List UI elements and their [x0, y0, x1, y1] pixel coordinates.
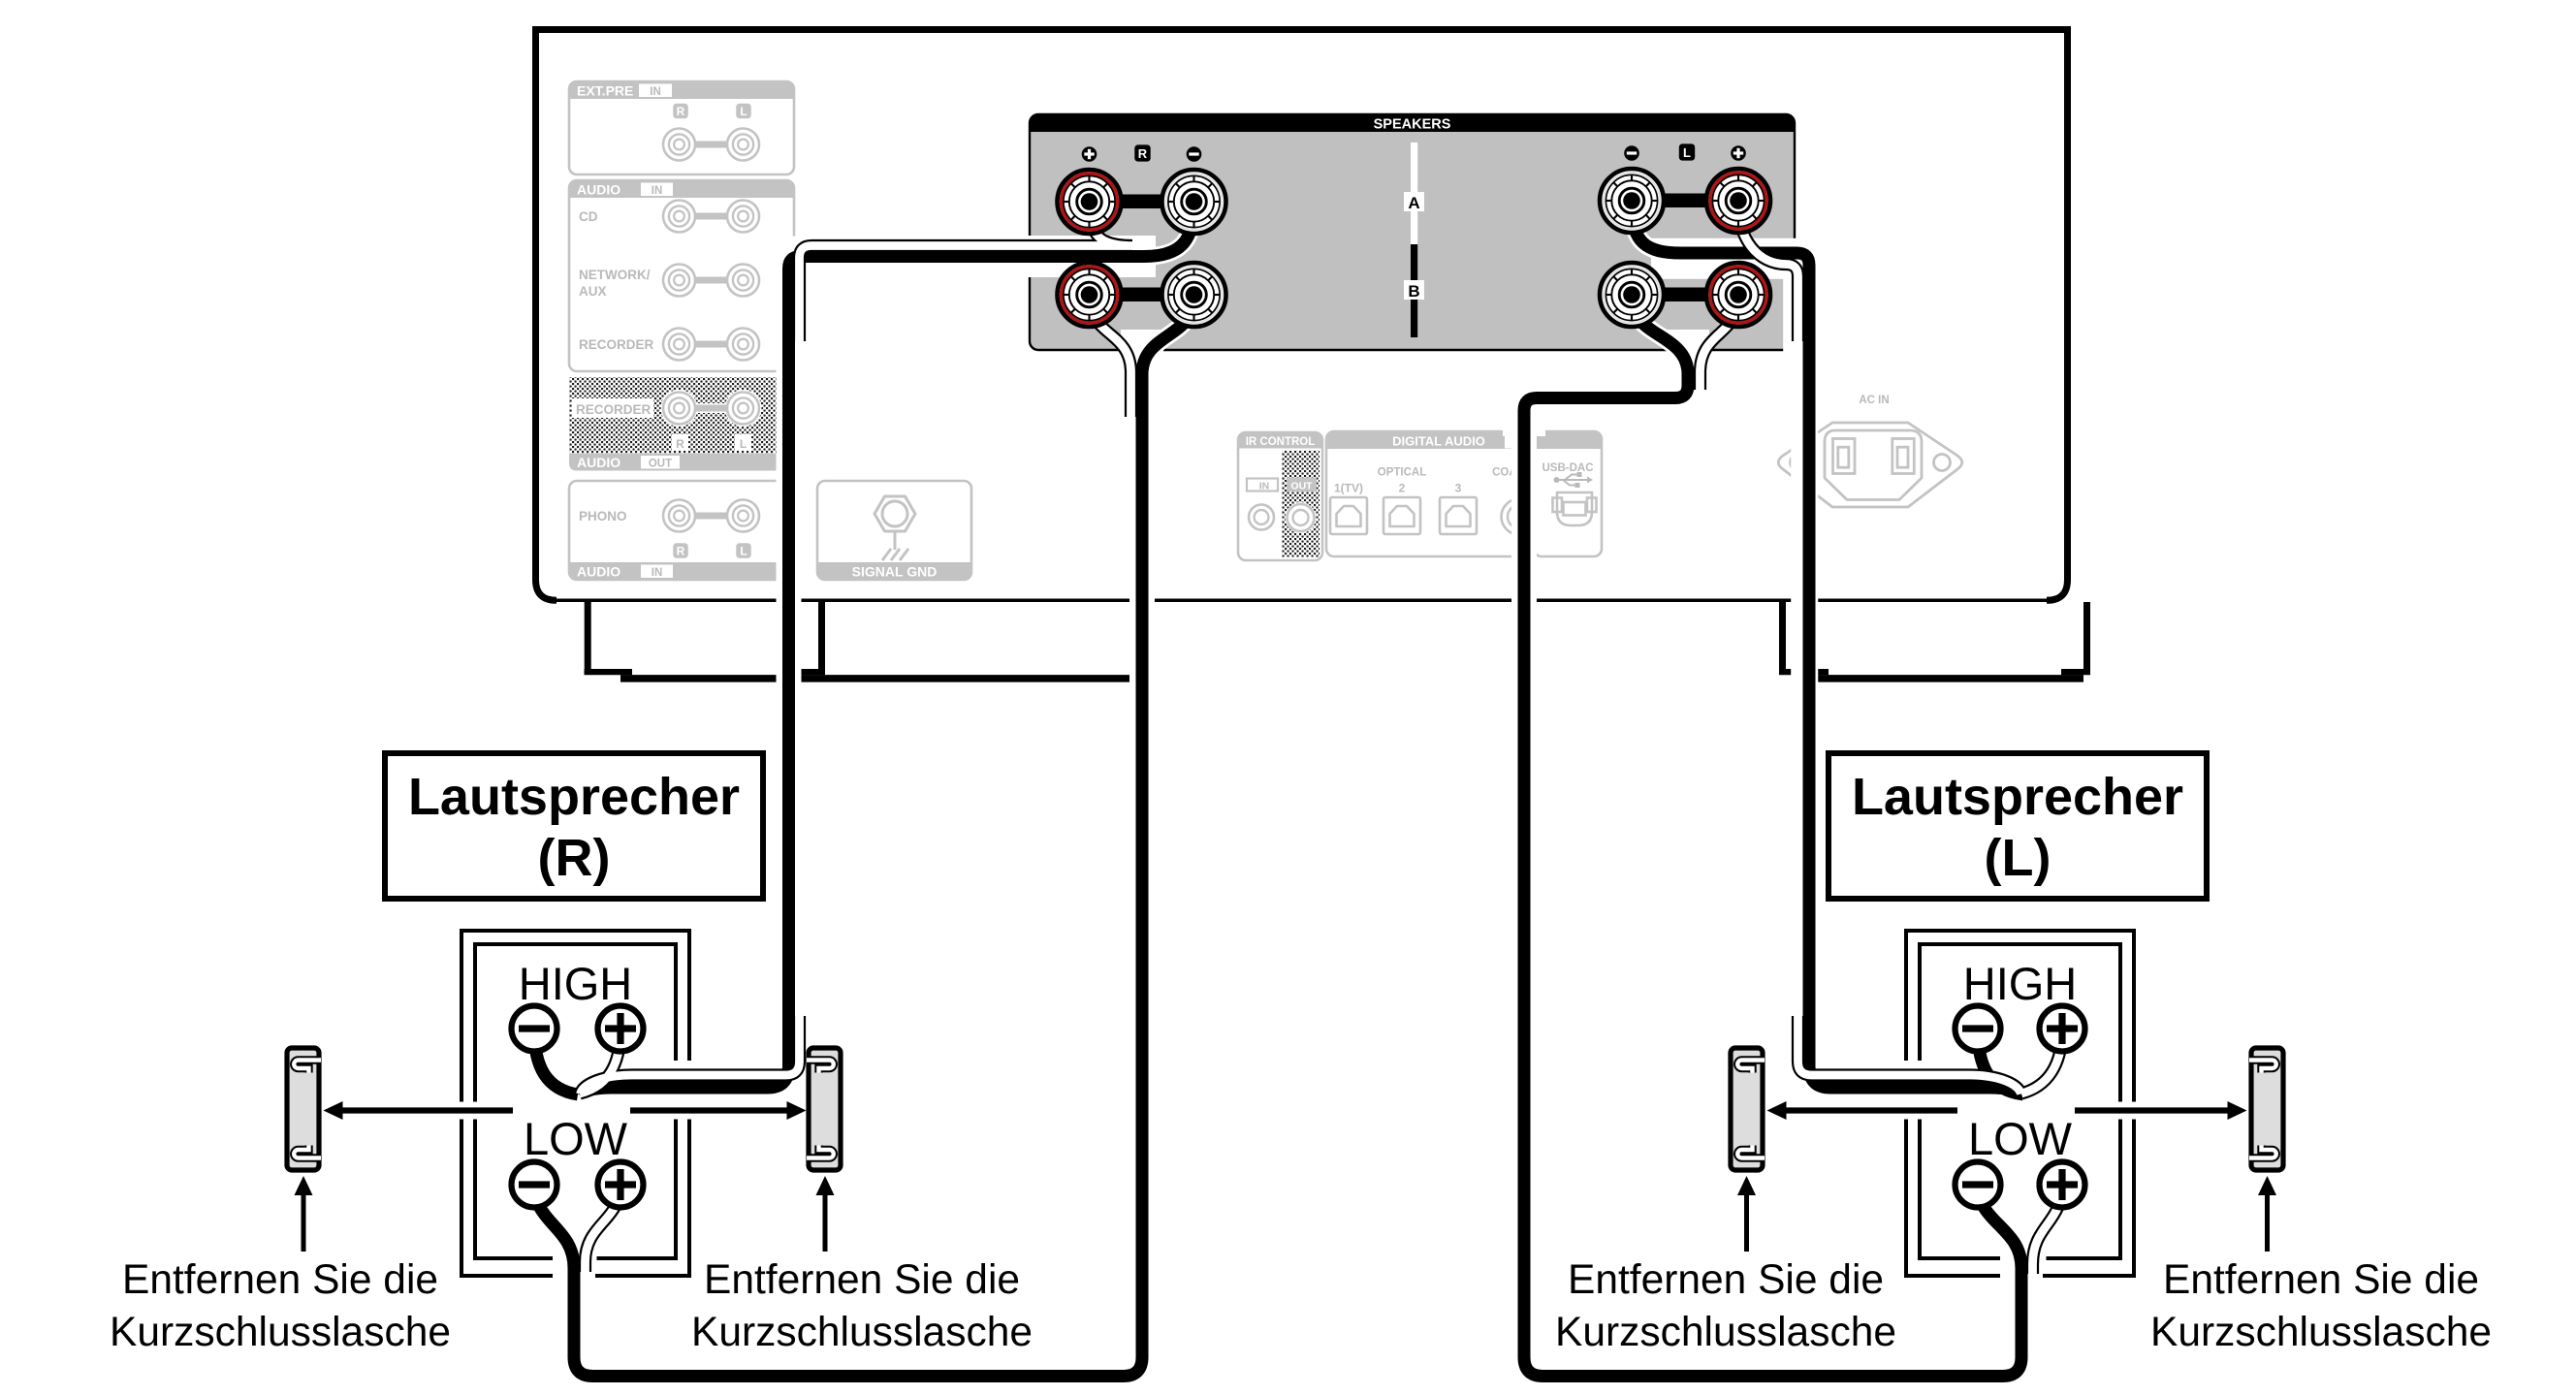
svg-text:HIGH: HIGH — [519, 958, 633, 1009]
svg-text:Kurzschlusslasche: Kurzschlusslasche — [1555, 1310, 1896, 1355]
svg-text:OUT: OUT — [649, 458, 672, 469]
svg-text:PHONO: PHONO — [579, 509, 627, 523]
svg-text:RECORDER: RECORDER — [579, 337, 654, 352]
svg-text:L: L — [740, 105, 747, 118]
svg-text:(R): (R) — [538, 829, 611, 887]
svg-text:IN: IN — [652, 567, 663, 579]
svg-text:LOW: LOW — [1968, 1113, 2073, 1164]
svg-text:R: R — [677, 545, 685, 558]
svg-text:EXT.PRE: EXT.PRE — [577, 83, 633, 99]
svg-text:3: 3 — [1455, 482, 1462, 495]
svg-text:AUDIO: AUDIO — [577, 564, 620, 580]
svg-text:OPTICAL: OPTICAL — [1378, 467, 1426, 479]
svg-text:L: L — [740, 545, 747, 558]
svg-text:L: L — [1683, 145, 1691, 160]
svg-text:AUDIO: AUDIO — [577, 455, 620, 470]
svg-text:2: 2 — [1399, 482, 1406, 495]
svg-text:AC IN: AC IN — [1859, 395, 1889, 406]
svg-text:IR CONTROL: IR CONTROL — [1246, 436, 1316, 448]
svg-text:A: A — [1408, 194, 1419, 212]
svg-text:HIGH: HIGH — [1963, 958, 2078, 1009]
svg-text:CD: CD — [579, 209, 598, 224]
svg-text:USB-DAC: USB-DAC — [1542, 462, 1593, 474]
svg-text:(L): (L) — [1985, 829, 2051, 887]
svg-text:B: B — [1408, 282, 1419, 301]
svg-text:Entfernen Sie die: Entfernen Sie die — [2163, 1257, 2479, 1303]
svg-text:R: R — [677, 105, 685, 118]
svg-text:LOW: LOW — [524, 1113, 628, 1164]
svg-text:SIGNAL GND: SIGNAL GND — [852, 564, 938, 580]
svg-text:L: L — [740, 437, 747, 451]
svg-text:Lautsprecher: Lautsprecher — [408, 768, 740, 826]
svg-text:RECORDER: RECORDER — [576, 402, 652, 417]
svg-text:1(TV): 1(TV) — [1334, 482, 1363, 495]
svg-text:NETWORK/: NETWORK/ — [579, 268, 651, 282]
svg-text:R: R — [676, 437, 684, 451]
svg-text:Kurzschlusslasche: Kurzschlusslasche — [110, 1310, 451, 1355]
svg-text:Entfernen Sie die: Entfernen Sie die — [122, 1257, 438, 1303]
svg-text:AUX: AUX — [579, 284, 607, 299]
svg-text:IN: IN — [1259, 480, 1270, 491]
svg-text:Kurzschlusslasche: Kurzschlusslasche — [691, 1310, 1033, 1355]
svg-text:IN: IN — [652, 185, 663, 197]
svg-text:Entfernen Sie die: Entfernen Sie die — [1568, 1257, 1884, 1303]
svg-text:Lautsprecher: Lautsprecher — [1852, 768, 2183, 826]
svg-text:R: R — [1138, 146, 1148, 161]
svg-text:DIGITAL AUDIO: DIGITAL AUDIO — [1392, 433, 1485, 448]
svg-text:SPEAKERS: SPEAKERS — [1374, 117, 1451, 133]
svg-text:IN: IN — [650, 86, 661, 98]
svg-text:Entfernen Sie die: Entfernen Sie die — [704, 1257, 1020, 1303]
svg-text:AUDIO: AUDIO — [577, 182, 620, 198]
svg-text:Kurzschlusslasche: Kurzschlusslasche — [2150, 1310, 2492, 1355]
svg-text:OUT: OUT — [1290, 480, 1313, 491]
